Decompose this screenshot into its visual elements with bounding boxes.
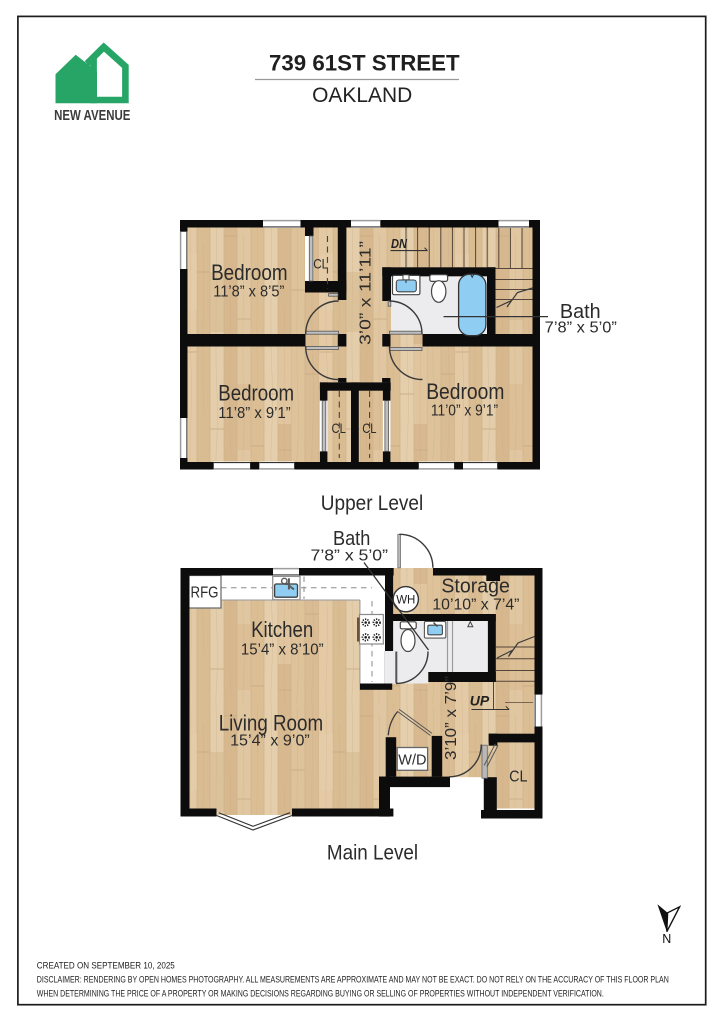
svg-text:WH: WH	[396, 594, 415, 606]
svg-text:OAKLAND: OAKLAND	[312, 84, 412, 107]
svg-text:UP: UP	[470, 693, 490, 709]
svg-text:DISCLAIMER: RENDERING BY OPEN: DISCLAIMER: RENDERING BY OPEN HOMES PHOT…	[37, 975, 669, 985]
svg-text:Upper Level: Upper Level	[321, 492, 423, 515]
svg-text:7’8” x 5’0”: 7’8” x 5’0”	[311, 548, 389, 565]
svg-text:11’8” x 9’1”: 11’8” x 9’1”	[218, 405, 290, 422]
svg-text:3’10” x 7’9”: 3’10” x 7’9”	[443, 676, 460, 760]
svg-text:11’0” x 9’1”: 11’0” x 9’1”	[431, 403, 498, 420]
svg-text:11’8” x 8’5”: 11’8” x 8’5”	[213, 284, 284, 301]
svg-text:Kitchen: Kitchen	[251, 617, 313, 642]
svg-text:CREATED ON SEPTEMBER 10, 2025: CREATED ON SEPTEMBER 10, 2025	[37, 960, 175, 970]
svg-text:N: N	[662, 932, 671, 946]
svg-text:15’4” x 8’10”: 15’4” x 8’10”	[241, 641, 324, 658]
svg-text:CL: CL	[509, 769, 528, 786]
svg-text:WHEN DETERMINING THE PRICE OF: WHEN DETERMINING THE PRICE OF A PROPERTY…	[37, 989, 604, 999]
svg-text:10’10” x 7’4”: 10’10” x 7’4”	[432, 596, 519, 613]
svg-text:CL: CL	[313, 256, 328, 272]
svg-text:W/D: W/D	[398, 753, 426, 769]
svg-text:DN: DN	[391, 237, 408, 251]
svg-text:CL: CL	[362, 420, 376, 436]
svg-text:Storage: Storage	[441, 575, 510, 597]
svg-text:Bedroom: Bedroom	[426, 379, 504, 404]
svg-text:3’0” x 11’11”: 3’0” x 11’11”	[358, 241, 375, 345]
svg-text:CL: CL	[332, 420, 346, 436]
svg-text:15’4” x 9’0”: 15’4” x 9’0”	[230, 733, 310, 750]
svg-text:NEW AVENUE: NEW AVENUE	[54, 108, 131, 124]
svg-text:RFG: RFG	[191, 584, 219, 601]
svg-text:Main Level: Main Level	[327, 842, 418, 865]
svg-text:739 61ST STREET: 739 61ST STREET	[269, 51, 460, 76]
svg-text:Bedroom: Bedroom	[218, 381, 294, 406]
svg-text:Bedroom: Bedroom	[211, 260, 288, 285]
svg-text:7’8” x 5’0”: 7’8” x 5’0”	[545, 319, 617, 336]
